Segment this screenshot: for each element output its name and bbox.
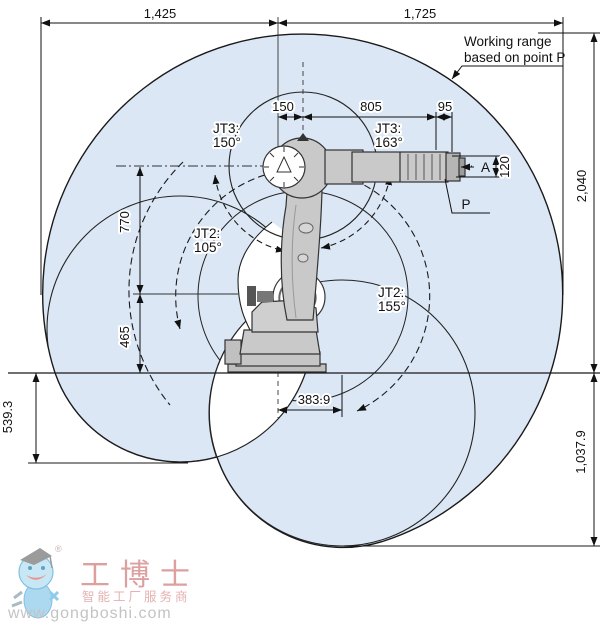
jt2-left-label: JT2: (194, 226, 220, 241)
arm-cutout (299, 223, 313, 233)
watermark-tagline: 智能工厂服务商 (82, 589, 191, 604)
jt3-left-label: JT3: (213, 121, 239, 136)
dim-depth-left: 539.3 (0, 401, 15, 434)
watermark-brand: 工博士 (80, 559, 200, 592)
point-a-label: A (481, 160, 490, 175)
dim-bottom-offset: 383.9 (298, 392, 331, 407)
dim-flange-width: 120 (497, 156, 512, 178)
base-riser (240, 330, 320, 354)
working-range-line2: based on point P (464, 50, 565, 65)
dim-total-height: 2,040 (574, 170, 589, 203)
arm-cutout-2 (298, 254, 308, 262)
watermark-url: www.gongboshi.com (7, 605, 172, 622)
watermark: ® 工博士 智能工厂服务商 www.gongboshi.com (7, 544, 200, 622)
jt3-right-angle: 163° (375, 135, 403, 150)
point-p-label: P (461, 197, 470, 212)
jt2-right-angle: 155° (378, 299, 406, 314)
watermark-reg: ® (55, 544, 62, 554)
jt3-right-label: JT3: (375, 121, 401, 136)
working-range-diagram: 1,425 1,725 150 805 95 120 2,040 1,037.9… (0, 0, 600, 626)
dim-reach-forward: 1,725 (404, 6, 437, 21)
dim-depth-right: 1,037.9 (573, 430, 588, 473)
working-range-line1: Working range (464, 34, 552, 49)
base-connector (225, 340, 241, 364)
motor-block (247, 286, 256, 306)
dim-forearm: 805 (360, 99, 382, 114)
dim-jt1-offset: 150 (272, 99, 294, 114)
dim-shoulder-height: 465 (117, 326, 132, 348)
elbow-joint-disk (263, 146, 305, 188)
diagram-canvas: 1,425 1,725 150 805 95 120 2,040 1,037.9… (0, 0, 600, 626)
jt2-left-angle: 105° (194, 240, 222, 255)
jt3-left-angle: 150° (213, 135, 241, 150)
motor-block-2 (257, 291, 273, 302)
dim-reach-back: 1,425 (144, 6, 177, 21)
working-range-leader (452, 66, 563, 79)
jt2-right-label: JT2: (378, 285, 404, 300)
dim-wrist-to-p: 95 (438, 99, 452, 114)
dim-upper-arm: 770 (117, 211, 132, 233)
